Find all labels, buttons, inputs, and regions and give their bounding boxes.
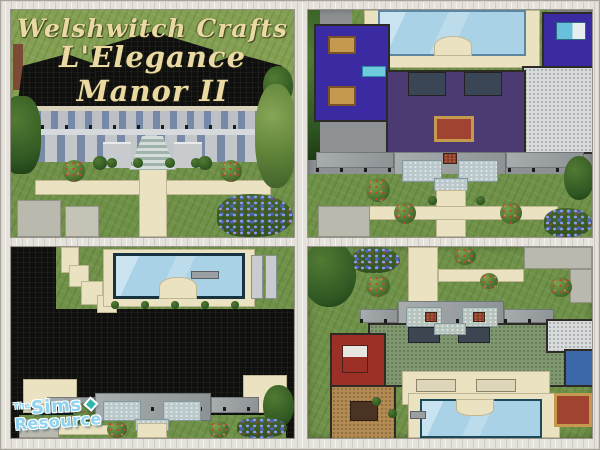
apple-tree	[366, 178, 390, 202]
screenshot-collage-frame: Welshwitch Crafts L'Elegance Manor II	[0, 0, 600, 450]
diving-board	[410, 411, 426, 419]
topiary	[111, 301, 119, 309]
sidewalk-right-edge	[570, 269, 592, 303]
red-rug	[434, 116, 474, 142]
topiary	[171, 301, 179, 309]
topiary	[165, 158, 175, 168]
flower-planter	[474, 313, 484, 321]
sidewalk-slab	[17, 200, 61, 237]
awning	[103, 401, 141, 421]
porch-posts	[316, 168, 586, 172]
apple-tree	[454, 247, 476, 265]
sidewalk-top-right	[524, 247, 592, 269]
bed	[342, 345, 368, 373]
aqua-bed	[556, 22, 586, 40]
apple-tree	[220, 160, 242, 182]
topiary	[133, 158, 143, 168]
apple-tree	[394, 202, 416, 224]
view-rear-aerial: TheSims Resource	[11, 247, 294, 438]
view-upper-floor-plan	[308, 10, 592, 237]
lounge-chair	[265, 255, 277, 299]
sidewalk-slab	[65, 206, 99, 237]
hedge	[372, 397, 381, 406]
room-blue	[566, 351, 592, 385]
sidewalk-slab	[318, 206, 370, 237]
flower-bed	[217, 194, 293, 237]
diving-board	[191, 271, 219, 279]
apple-tree	[366, 275, 390, 297]
walkway-vertical	[137, 423, 167, 438]
lot-title-line1: Welshwitch Crafts	[11, 14, 294, 43]
apple-tree	[480, 273, 498, 289]
topiary	[476, 196, 485, 205]
apple-tree	[209, 421, 229, 438]
stair-window	[464, 72, 502, 96]
flower-pond	[237, 417, 287, 438]
apple-tree	[107, 421, 127, 438]
awning	[163, 401, 201, 421]
topiary	[428, 196, 437, 205]
topiary	[201, 301, 209, 309]
pool-steps	[456, 399, 494, 416]
apple-tree	[500, 202, 522, 224]
apple-tree	[63, 160, 85, 182]
tree-right-edge	[564, 156, 592, 200]
topiary	[107, 158, 117, 168]
porch-roof-left	[316, 152, 394, 168]
awning-entry	[434, 323, 466, 335]
flower-planter	[426, 313, 436, 321]
lounge-chair	[251, 255, 263, 299]
aqua-sofa	[362, 66, 386, 77]
view-ground-floor-plan	[308, 247, 592, 438]
room-white-right	[548, 321, 592, 351]
view-front-exterior: Welshwitch Crafts L'Elegance Manor II	[11, 10, 294, 237]
tree-mass-topleft	[308, 247, 356, 307]
bathroom-white	[524, 68, 592, 152]
gold-rug	[328, 36, 356, 54]
logo-the: The	[13, 401, 30, 411]
flower-bed	[352, 247, 400, 273]
topiary	[141, 301, 149, 309]
flower-bed	[544, 208, 592, 237]
apple-tree	[550, 277, 572, 297]
sofa	[476, 379, 516, 392]
flower-planter	[444, 154, 456, 163]
topiary-large	[198, 156, 212, 170]
lot-title-line2: L'Elegance Manor II	[11, 40, 294, 108]
walkway-vertical	[408, 247, 438, 307]
topiary	[231, 301, 239, 309]
gold-rug	[328, 86, 356, 106]
pool-steps	[159, 277, 197, 299]
hedge	[388, 409, 397, 418]
topiary-large	[93, 156, 107, 170]
walkway-horizontal	[342, 206, 558, 220]
red-rug	[554, 393, 592, 427]
sofa	[416, 379, 456, 392]
walkway-vertical	[139, 162, 167, 237]
stair-window	[408, 72, 446, 96]
sims-resource-logo: TheSims Resource	[13, 396, 102, 433]
pool-steps	[434, 36, 472, 56]
